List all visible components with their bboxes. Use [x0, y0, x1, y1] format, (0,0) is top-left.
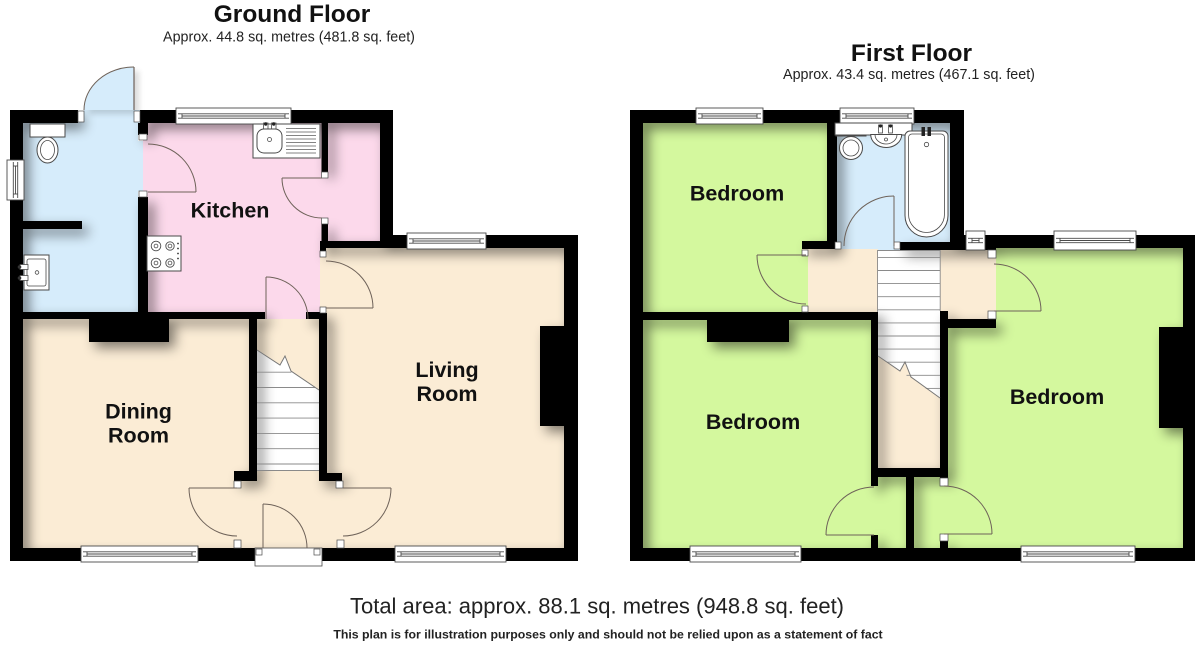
- svg-text:Ground Floor: Ground Floor: [214, 1, 371, 28]
- svg-text:Kitchen: Kitchen: [191, 199, 270, 223]
- svg-text:Bedroom: Bedroom: [690, 182, 784, 206]
- svg-text:Living: Living: [415, 358, 478, 382]
- svg-text:Approx. 44.8 sq. metres (481.8: Approx. 44.8 sq. metres (481.8 sq. feet): [163, 29, 415, 45]
- svg-text:Approx. 43.4 sq. metres (467.1: Approx. 43.4 sq. metres (467.1 sq. feet): [783, 67, 1035, 83]
- svg-text:Room: Room: [108, 424, 169, 448]
- svg-text:Total area: approx. 88.1 sq. m: Total area: approx. 88.1 sq. metres (948…: [350, 593, 844, 618]
- svg-text:This plan is for illustration: This plan is for illustration purposes o…: [333, 628, 882, 642]
- svg-text:Bedroom: Bedroom: [706, 410, 800, 434]
- svg-text:Bedroom: Bedroom: [1010, 385, 1104, 409]
- svg-text:First Floor: First Floor: [851, 40, 973, 67]
- svg-text:Dining: Dining: [105, 399, 172, 423]
- svg-text:Room: Room: [417, 382, 478, 406]
